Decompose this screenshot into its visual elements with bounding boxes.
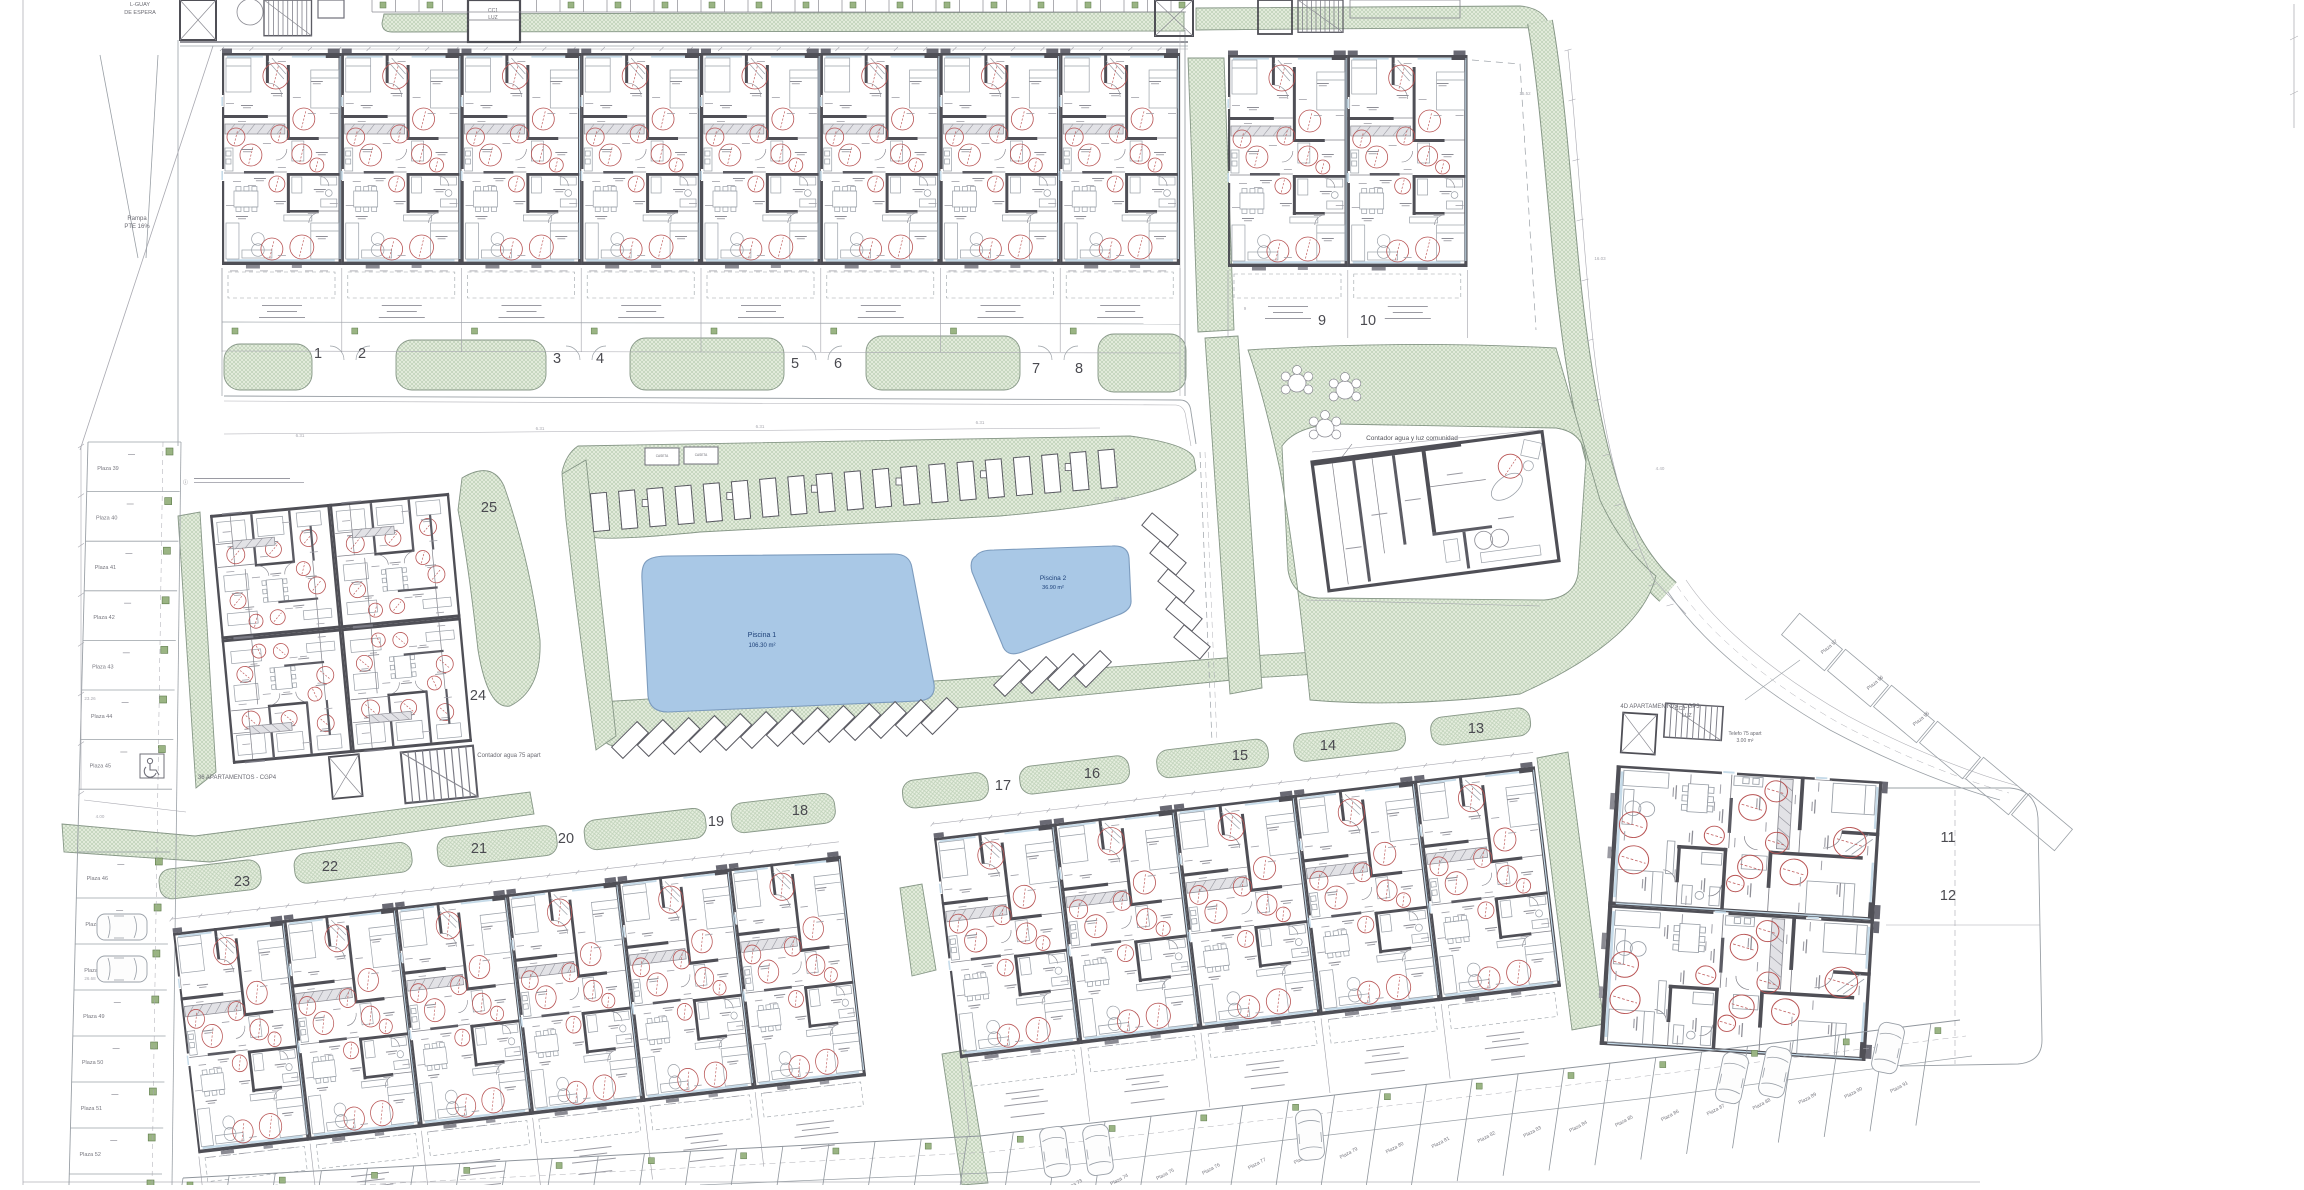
svg-text:15: 15 <box>1232 748 1248 764</box>
svg-text:25: 25 <box>481 500 497 516</box>
svg-text:36 APARTAMENTOS - CGP4: 36 APARTAMENTOS - CGP4 <box>198 775 277 781</box>
svg-text:21: 21 <box>471 841 487 857</box>
svg-text:15.52: 15.52 <box>1519 91 1531 96</box>
svg-text:Plaza 39: Plaza 39 <box>97 466 118 472</box>
svg-text:6: 6 <box>834 356 842 372</box>
svg-text:2: 2 <box>358 346 366 362</box>
svg-text:CASETA: CASETA <box>695 453 708 457</box>
svg-text:18: 18 <box>792 803 808 819</box>
svg-text:13: 13 <box>1468 721 1484 737</box>
svg-text:Contador agua y luz comunidad: Contador agua y luz comunidad <box>1366 435 1458 442</box>
svg-text:Plaza 46: Plaza 46 <box>87 876 108 882</box>
svg-text:10: 10 <box>1360 313 1376 329</box>
svg-text:6.31: 6.31 <box>536 426 545 431</box>
svg-text:20: 20 <box>558 831 574 847</box>
svg-text:24: 24 <box>470 688 486 704</box>
svg-text:Plaza 52: Plaza 52 <box>79 1152 100 1158</box>
svg-text:8: 8 <box>1075 361 1083 377</box>
svg-text:DE ESPERA: DE ESPERA <box>124 10 156 16</box>
svg-text:ⓘ: ⓘ <box>183 479 188 486</box>
svg-text:Plaza 45: Plaza 45 <box>90 764 111 770</box>
svg-text:6.31: 6.31 <box>976 420 985 425</box>
svg-text:Plaza 43: Plaza 43 <box>92 664 113 670</box>
svg-text:Plaza 50: Plaza 50 <box>82 1060 103 1066</box>
svg-text:Rampa: Rampa <box>127 216 147 222</box>
svg-text:4: 4 <box>596 351 604 367</box>
svg-text:LUZ: LUZ <box>488 15 497 21</box>
svg-text:11: 11 <box>1940 830 1955 846</box>
svg-text:L-GUAY: L-GUAY <box>130 2 150 8</box>
svg-text:Telefo 75 apart: Telefo 75 apart <box>1728 731 1762 737</box>
svg-text:PTE 16%: PTE 16% <box>124 224 150 230</box>
svg-text:Plaza 41: Plaza 41 <box>95 565 116 571</box>
svg-text:3: 3 <box>553 351 561 367</box>
svg-text:Piscina 2: Piscina 2 <box>1040 575 1067 582</box>
svg-text:Plaza 44: Plaza 44 <box>91 714 112 720</box>
svg-text:4.00: 4.00 <box>96 814 105 819</box>
svg-text:17: 17 <box>995 778 1011 794</box>
svg-text:3.00 m²: 3.00 m² <box>1737 738 1754 744</box>
svg-text:16: 16 <box>1084 766 1100 782</box>
svg-text:6.31: 6.31 <box>296 433 305 438</box>
svg-text:Piscina 1: Piscina 1 <box>748 632 777 639</box>
svg-text:LUZ: LUZ <box>1682 713 1691 719</box>
svg-text:6.31: 6.31 <box>756 424 765 429</box>
svg-text:4D APARTAMENTOS - CGP3: 4D APARTAMENTOS - CGP3 <box>1620 704 1700 710</box>
svg-text:Contador agua 75 apart: Contador agua 75 apart <box>477 753 541 759</box>
svg-text:Plaza 42: Plaza 42 <box>93 615 114 621</box>
svg-text:CC1: CC1 <box>488 8 498 14</box>
svg-text:4.40: 4.40 <box>1656 466 1665 471</box>
svg-text:1: 1 <box>314 346 322 362</box>
svg-text:23: 23 <box>234 874 250 890</box>
svg-text:26.68: 26.68 <box>84 976 96 981</box>
svg-text:19: 19 <box>708 814 724 830</box>
svg-text:9: 9 <box>1318 313 1326 329</box>
svg-text:CASETA: CASETA <box>656 454 669 458</box>
svg-text:22: 22 <box>322 859 338 875</box>
svg-text:5: 5 <box>791 356 799 372</box>
svg-text:Plaza 40: Plaza 40 <box>96 516 117 522</box>
svg-text:23.96: 23.96 <box>1114 496 1126 501</box>
svg-text:Plaza 51: Plaza 51 <box>81 1106 102 1112</box>
svg-text:12: 12 <box>1940 888 1956 904</box>
svg-text:36.90 m²: 36.90 m² <box>1042 585 1064 591</box>
svg-text:14: 14 <box>1320 738 1336 754</box>
svg-text:Plaza 49: Plaza 49 <box>83 1014 104 1020</box>
svg-text:106.30 m²: 106.30 m² <box>748 643 775 649</box>
svg-text:16.03: 16.03 <box>1594 256 1606 261</box>
svg-text:23.26: 23.26 <box>84 696 96 701</box>
svg-text:7: 7 <box>1032 361 1040 377</box>
